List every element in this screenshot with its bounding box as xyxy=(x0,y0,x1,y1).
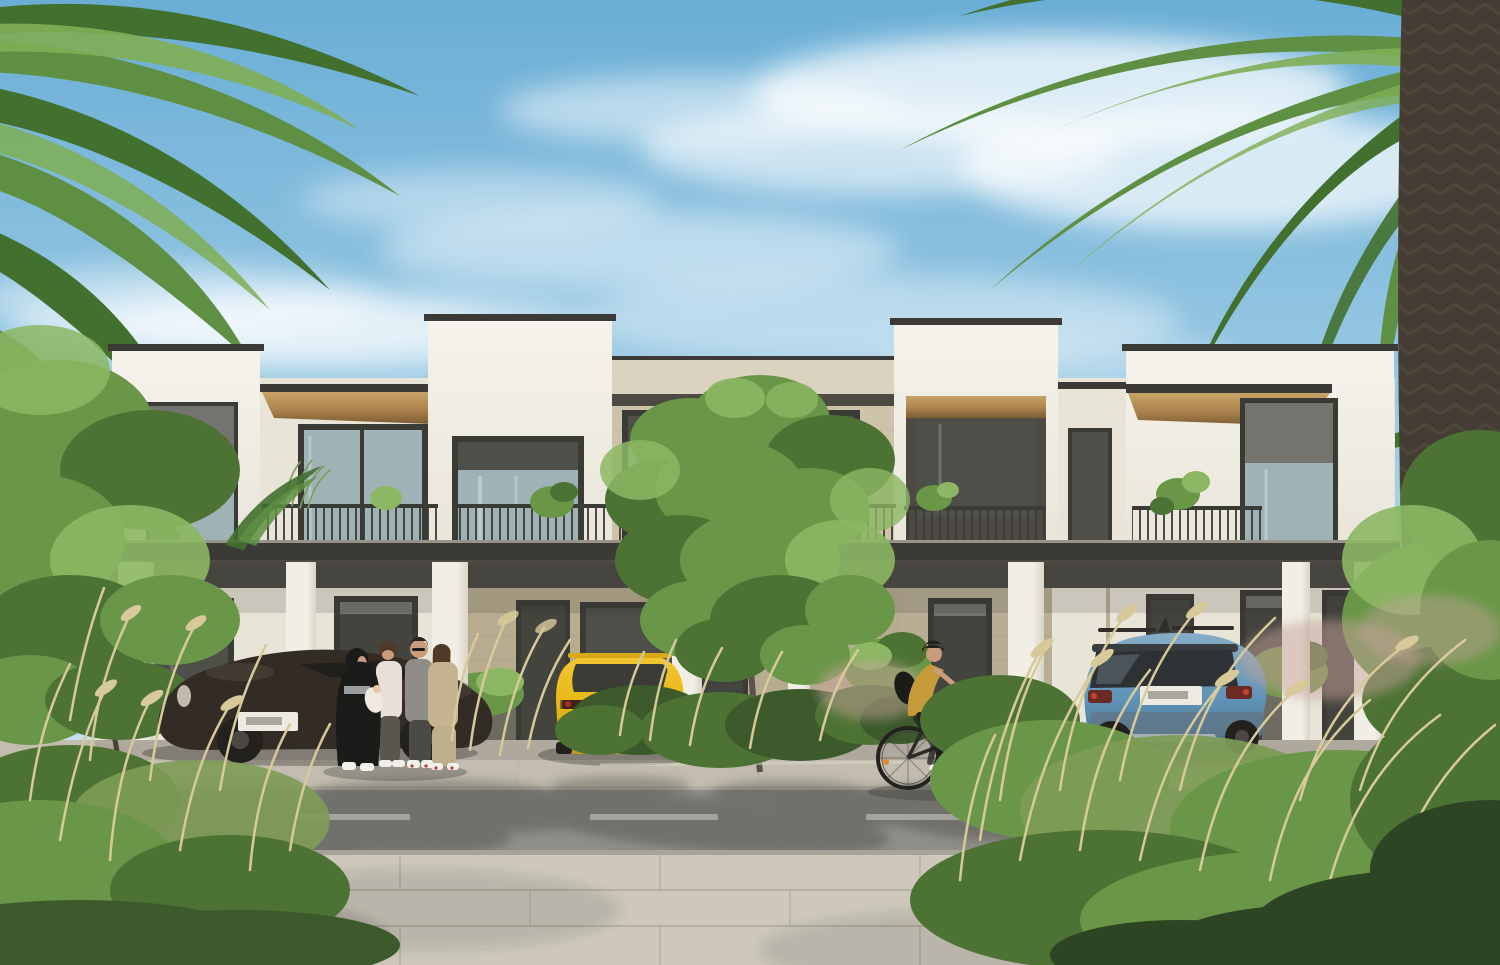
headlight xyxy=(177,685,191,707)
roof-spoiler xyxy=(568,653,672,658)
rendered-scene: Street view of a modern two-storey flat-… xyxy=(0,0,1500,965)
townhouse-render: Street view of a modern two-storey flat-… xyxy=(0,0,1500,965)
facade-section-right xyxy=(1056,382,1130,556)
wheel-reflector xyxy=(883,759,889,765)
license-plate xyxy=(1140,686,1202,705)
taillight xyxy=(1088,690,1112,703)
taillight xyxy=(1226,686,1252,699)
